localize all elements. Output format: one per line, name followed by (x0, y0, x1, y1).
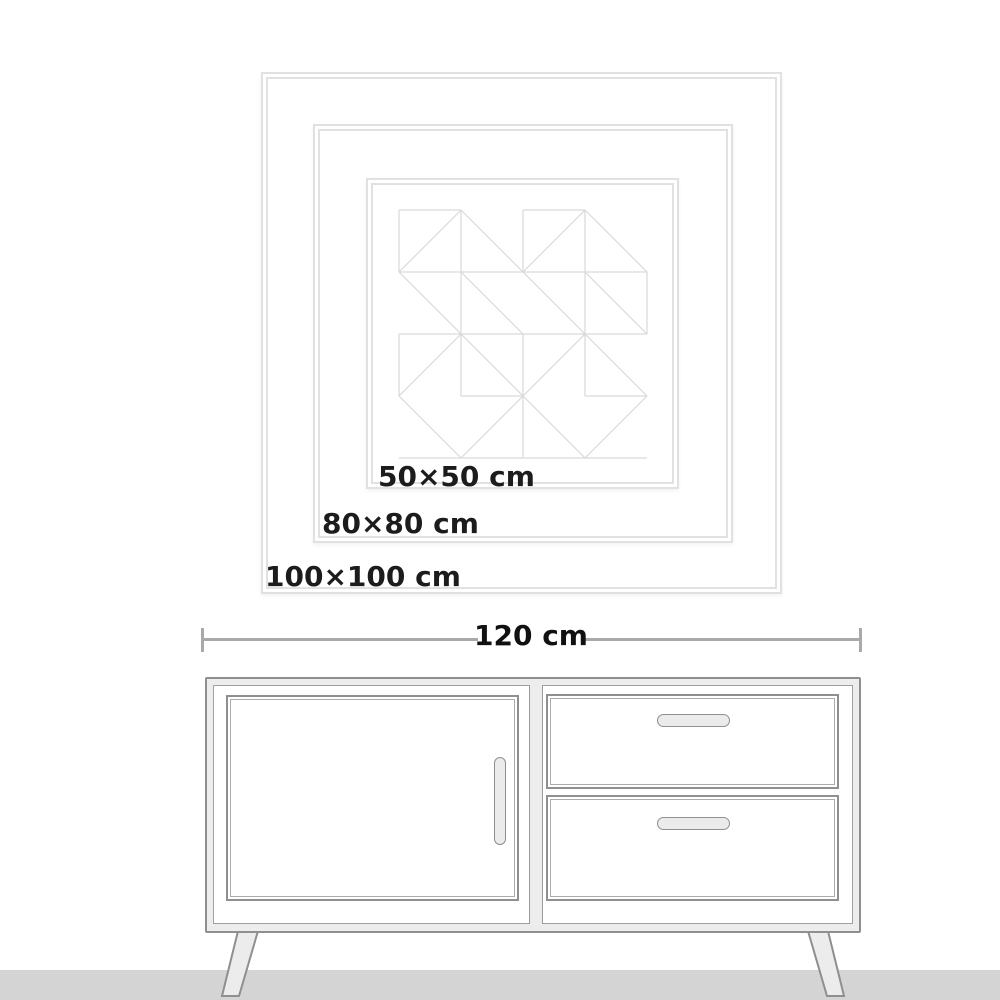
drawer-bottom-inner-line (550, 799, 835, 897)
dimension-tick-right (859, 628, 862, 652)
sideboard-legs (0, 931, 1000, 997)
sideboard-drawer-top (546, 694, 839, 789)
size-label-100: 100×100 cm (265, 563, 461, 591)
tapestry-pattern (398, 209, 648, 459)
size-label-50: 50×50 cm (378, 463, 535, 491)
sideboard-center-divider (529, 685, 543, 924)
drawer-top-inner-line (550, 698, 835, 785)
drawer-top-handle (657, 714, 730, 727)
size-guide-diagram: 50×50 cm 80×80 cm 100×100 cm 120 cm (0, 0, 1000, 1000)
door-inner-line (230, 699, 515, 897)
door-handle (494, 757, 506, 845)
size-label-80: 80×80 cm (322, 510, 479, 538)
left-leg (222, 931, 258, 996)
sideboard (205, 677, 861, 933)
dimension-label: 120 cm (431, 622, 631, 650)
sideboard-drawer-bottom (546, 795, 839, 901)
right-leg (808, 931, 844, 996)
drawer-bottom-handle (657, 817, 730, 830)
sideboard-door (226, 695, 519, 901)
